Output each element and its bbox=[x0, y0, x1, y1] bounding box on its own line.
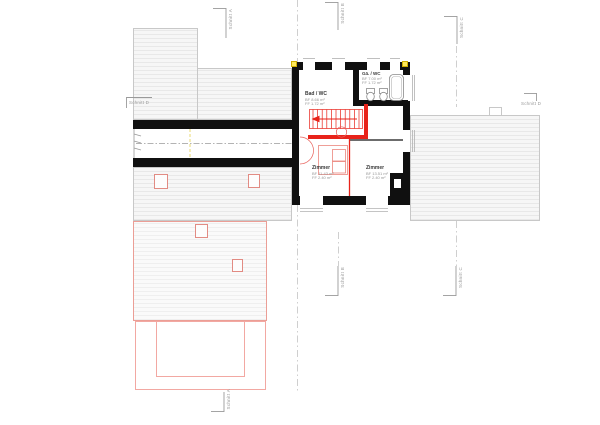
room-extra: FF 1.72 m² bbox=[305, 102, 327, 107]
section-label-c-top: Schnitt C bbox=[459, 17, 464, 38]
section-label-b-mid: Schnitt B bbox=[340, 267, 345, 288]
chimney-flue bbox=[394, 179, 401, 188]
corridor-centerline bbox=[134, 129, 292, 158]
section-label-b-top: Schnitt B bbox=[340, 3, 345, 24]
marker-yellow-right bbox=[402, 61, 408, 67]
corridor-wall-north bbox=[133, 120, 299, 129]
section-label-a-bottom: Schnitt A bbox=[226, 389, 231, 409]
section-label-c-mid: Schnitt C bbox=[458, 267, 463, 288]
roof-pink-hatched bbox=[133, 221, 267, 321]
room-label-zimmer-left: Zimmer BF 11.43 m² FF 2.40 m² bbox=[312, 166, 334, 181]
roof-left-lower bbox=[133, 167, 292, 221]
room-extra: FF 1.72 m² bbox=[362, 81, 382, 86]
marker-yellow-left bbox=[291, 61, 297, 67]
stair bbox=[310, 110, 363, 129]
room-label-gae-wc: Gä. / WC BF 7.00 m² FF 1.72 m² bbox=[362, 71, 382, 86]
section-label-a-top: Schnitt A bbox=[228, 9, 233, 29]
lower-roof-outline-inner bbox=[156, 321, 245, 377]
wall-interior-vertical bbox=[353, 70, 359, 100]
door-swing-arcs bbox=[300, 127, 347, 164]
wall-bottom-seg bbox=[388, 196, 410, 205]
wall-top-seg bbox=[380, 62, 390, 70]
corridor-wall-south bbox=[133, 158, 299, 167]
section-label-d-left: Schnitt D bbox=[129, 100, 149, 105]
section-label-d-right: Schnitt D bbox=[521, 101, 541, 106]
roof-right bbox=[410, 115, 540, 221]
room-label-bad-wc: Bad / WC BF 8.66 m² FF 1.72 m² bbox=[305, 92, 327, 107]
wall-top-seg bbox=[345, 62, 367, 70]
roof-left-upper-wide bbox=[198, 68, 292, 120]
new-red-walls bbox=[308, 104, 368, 139]
wc-and-sink bbox=[367, 89, 388, 101]
roof-left-upper-tall bbox=[133, 28, 198, 120]
bathtub bbox=[390, 75, 404, 101]
room-extra: FF 2.40 m² bbox=[312, 176, 334, 181]
room-label-zimmer-right: Zimmer BF 13.51 m² FF 2.40 m² bbox=[366, 166, 388, 181]
stair-direction-arrow bbox=[312, 116, 358, 123]
wall-interior-horizontal bbox=[353, 100, 408, 106]
wall-bottom-seg bbox=[292, 196, 300, 205]
wall-top-seg bbox=[315, 62, 332, 70]
room-extra: FF 2.40 m² bbox=[366, 176, 388, 181]
floor-plan-canvas: Bad / WC BF 8.66 m² FF 1.72 m² Gä. / WC … bbox=[0, 0, 600, 425]
roof-right-chimney bbox=[489, 107, 502, 116]
wall-left bbox=[292, 62, 299, 205]
wall-bottom-seg bbox=[323, 196, 366, 205]
